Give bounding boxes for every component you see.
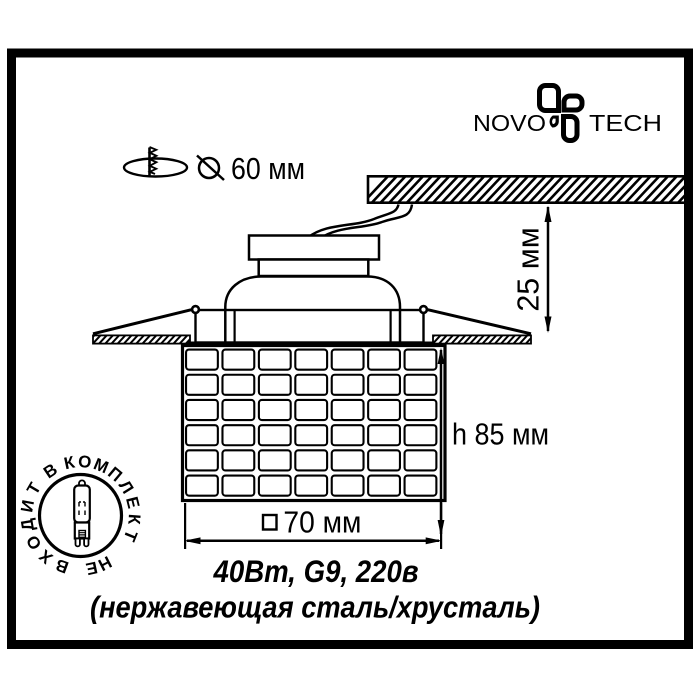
svg-text:h 85 мм: h 85 мм xyxy=(452,418,549,452)
svg-text:NOVO: NOVO xyxy=(473,110,546,136)
svg-text:TECH: TECH xyxy=(589,110,662,136)
svg-text:(нержавеющая сталь/хрусталь): (нержавеющая сталь/хрусталь) xyxy=(90,591,540,625)
svg-text:К: К xyxy=(124,513,144,525)
svg-text:40Вт, G9, 220в: 40Вт, G9, 220в xyxy=(213,553,419,589)
svg-text:25 мм: 25 мм xyxy=(512,227,546,311)
svg-text:70 мм: 70 мм xyxy=(283,506,361,540)
svg-text:60 мм: 60 мм xyxy=(231,152,305,186)
svg-text:О: О xyxy=(77,452,92,472)
